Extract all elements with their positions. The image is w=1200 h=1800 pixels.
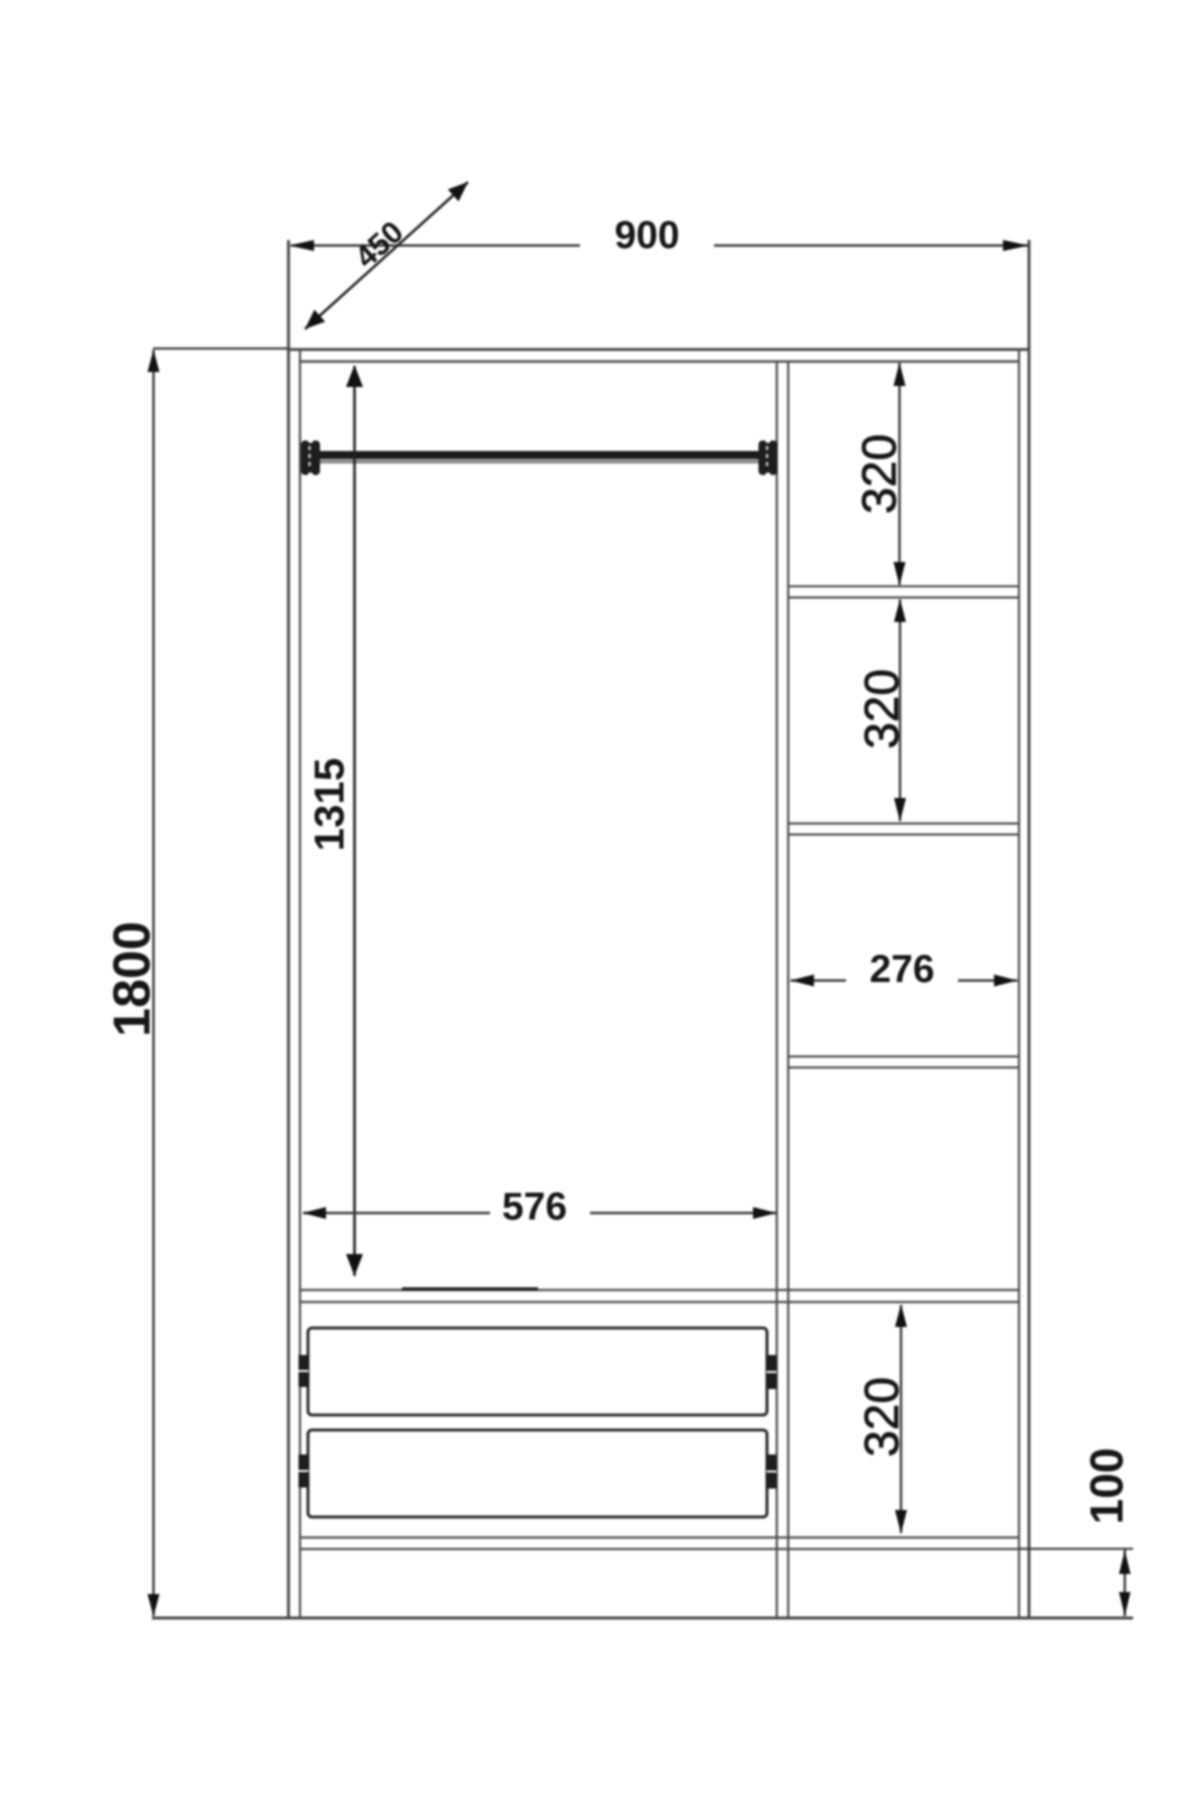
svg-text:276: 276 [869, 948, 934, 991]
svg-text:576: 576 [502, 1186, 567, 1229]
svg-text:320: 320 [856, 1377, 909, 1457]
svg-text:320: 320 [854, 434, 907, 514]
svg-text:1800: 1800 [104, 921, 162, 1037]
svg-text:900: 900 [614, 214, 679, 257]
svg-text:1315: 1315 [306, 758, 353, 851]
svg-text:320: 320 [856, 669, 909, 749]
svg-text:100: 100 [1081, 1448, 1133, 1525]
